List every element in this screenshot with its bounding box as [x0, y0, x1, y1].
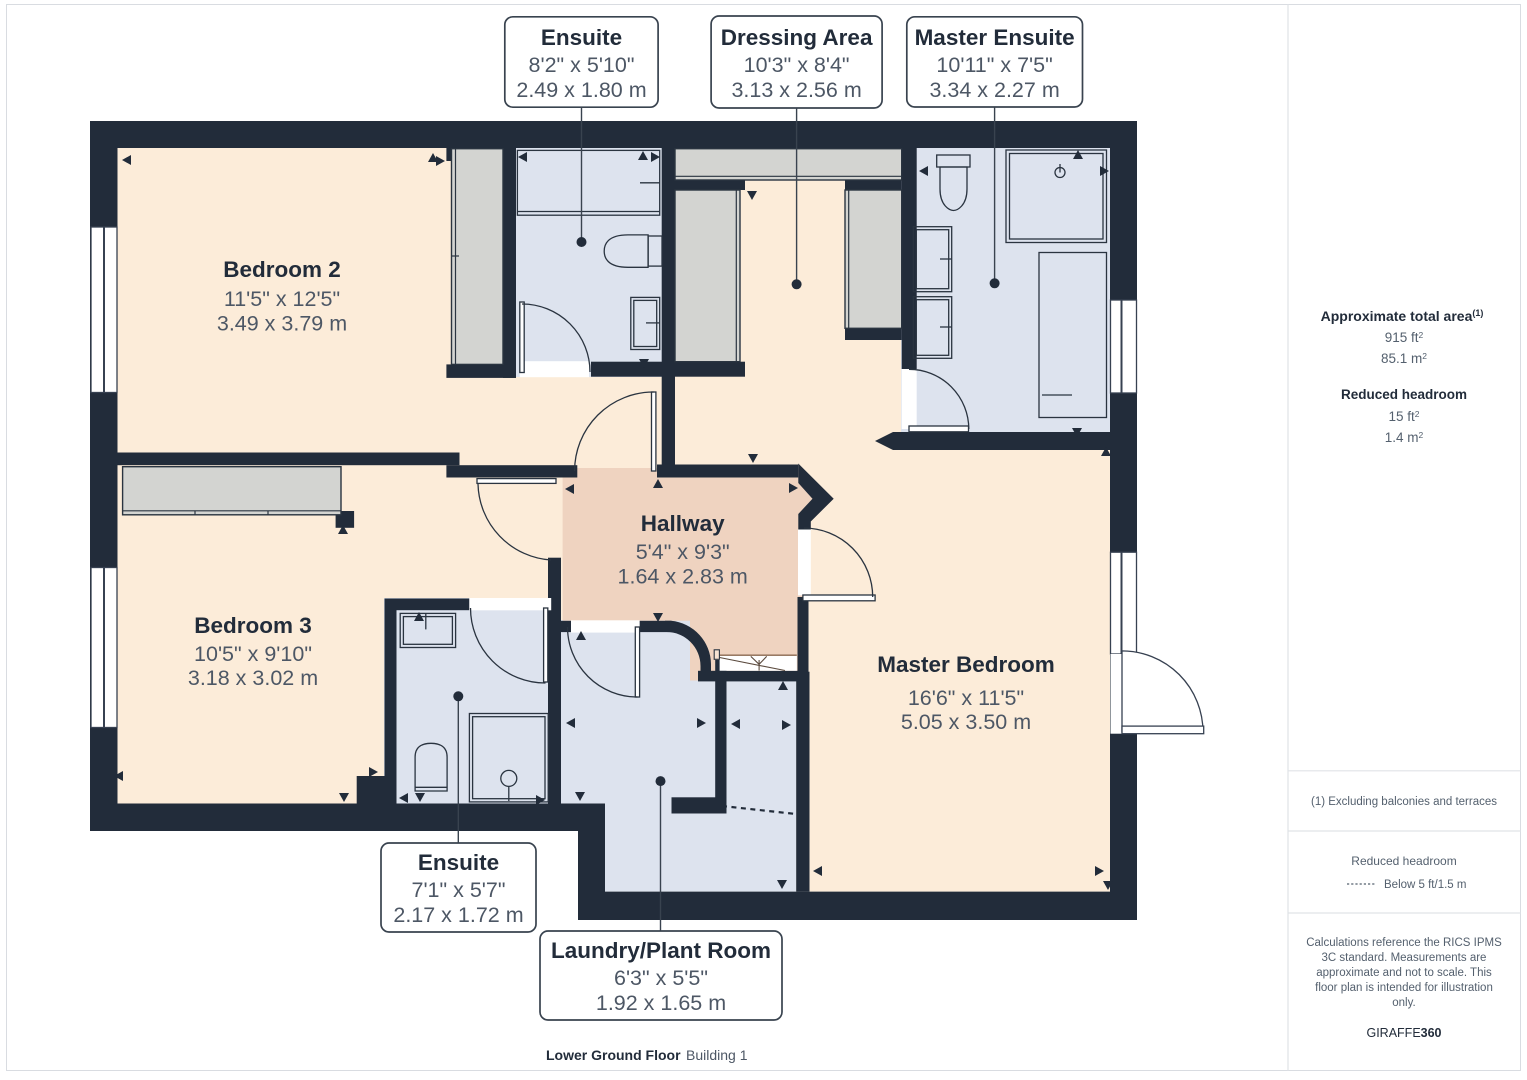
svg-text:3C standard. Measurements are: 3C standard. Measurements are [1322, 952, 1487, 964]
svg-text:Bedroom 3: Bedroom 3 [194, 613, 312, 638]
svg-text:7'1" x 5'7": 7'1" x 5'7" [412, 878, 506, 902]
svg-text:GIRAFFE360: GIRAFFE360 [1366, 1026, 1441, 1040]
svg-text:5'4" x 9'3": 5'4" x 9'3" [636, 540, 730, 564]
svg-text:Calculations reference the RIC: Calculations reference the RICS IPMS [1306, 937, 1502, 949]
svg-text:16'6" x 11'5": 16'6" x 11'5" [908, 686, 1024, 710]
svg-text:10'3" x 8'4": 10'3" x 8'4" [744, 53, 850, 77]
svg-text:1.4 m2: 1.4 m2 [1385, 430, 1424, 445]
svg-text:5.05 x 3.50 m: 5.05 x 3.50 m [901, 710, 1031, 734]
svg-text:1.92 x 1.65 m: 1.92 x 1.65 m [596, 991, 726, 1015]
svg-text:2.17 x 1.72 m: 2.17 x 1.72 m [393, 903, 523, 927]
svg-text:Below 5 ft/1.5 m: Below 5 ft/1.5 m [1384, 879, 1466, 891]
svg-text:3.13 x 2.56 m: 3.13 x 2.56 m [731, 78, 861, 102]
svg-text:only.: only. [1392, 997, 1415, 1009]
svg-text:11'5" x 12'5": 11'5" x 12'5" [224, 287, 340, 311]
svg-text:Reduced headroom: Reduced headroom [1351, 854, 1456, 868]
svg-text:10'5" x 9'10": 10'5" x 9'10" [194, 642, 312, 666]
svg-text:1.64 x 2.83 m: 1.64 x 2.83 m [618, 565, 748, 589]
svg-text:Ensuite: Ensuite [541, 25, 622, 50]
svg-text:3.18 x 3.02 m: 3.18 x 3.02 m [188, 666, 318, 690]
svg-text:Approximate total area(1): Approximate total area(1) [1321, 308, 1484, 324]
svg-text:Master Bedroom: Master Bedroom [877, 652, 1055, 677]
svg-text:Dressing Area: Dressing Area [721, 25, 873, 50]
svg-text:(1) Excluding balconies and te: (1) Excluding balconies and terraces [1311, 796, 1497, 808]
svg-text:approximate and not to scale.: approximate and not to scale. This [1316, 967, 1492, 979]
svg-text:Hallway: Hallway [641, 511, 725, 536]
svg-text:915 ft2: 915 ft2 [1385, 330, 1424, 345]
svg-text:8'2" x 5'10": 8'2" x 5'10" [529, 53, 635, 77]
svg-text:Reduced headroom: Reduced headroom [1341, 387, 1467, 402]
svg-text:2.49 x 1.80 m: 2.49 x 1.80 m [516, 78, 646, 102]
svg-text:Lower Ground Floor: Lower Ground Floor [546, 1047, 681, 1063]
svg-text:floor plan is intended for ill: floor plan is intended for illustration [1315, 982, 1493, 994]
svg-text:Building 1: Building 1 [686, 1047, 748, 1063]
svg-text:10'11" x 7'5": 10'11" x 7'5" [936, 53, 1052, 77]
svg-text:Laundry/Plant Room: Laundry/Plant Room [551, 938, 771, 963]
svg-text:3.49 x 3.79 m: 3.49 x 3.79 m [217, 312, 347, 336]
svg-text:85.1 m2: 85.1 m2 [1381, 351, 1427, 366]
svg-text:Bedroom 2: Bedroom 2 [223, 257, 341, 282]
svg-text:3.34 x 2.27 m: 3.34 x 2.27 m [929, 78, 1059, 102]
svg-text:6'3" x 5'5": 6'3" x 5'5" [614, 966, 708, 990]
svg-text:Master Ensuite: Master Ensuite [915, 25, 1075, 50]
svg-text:Ensuite: Ensuite [418, 850, 499, 875]
